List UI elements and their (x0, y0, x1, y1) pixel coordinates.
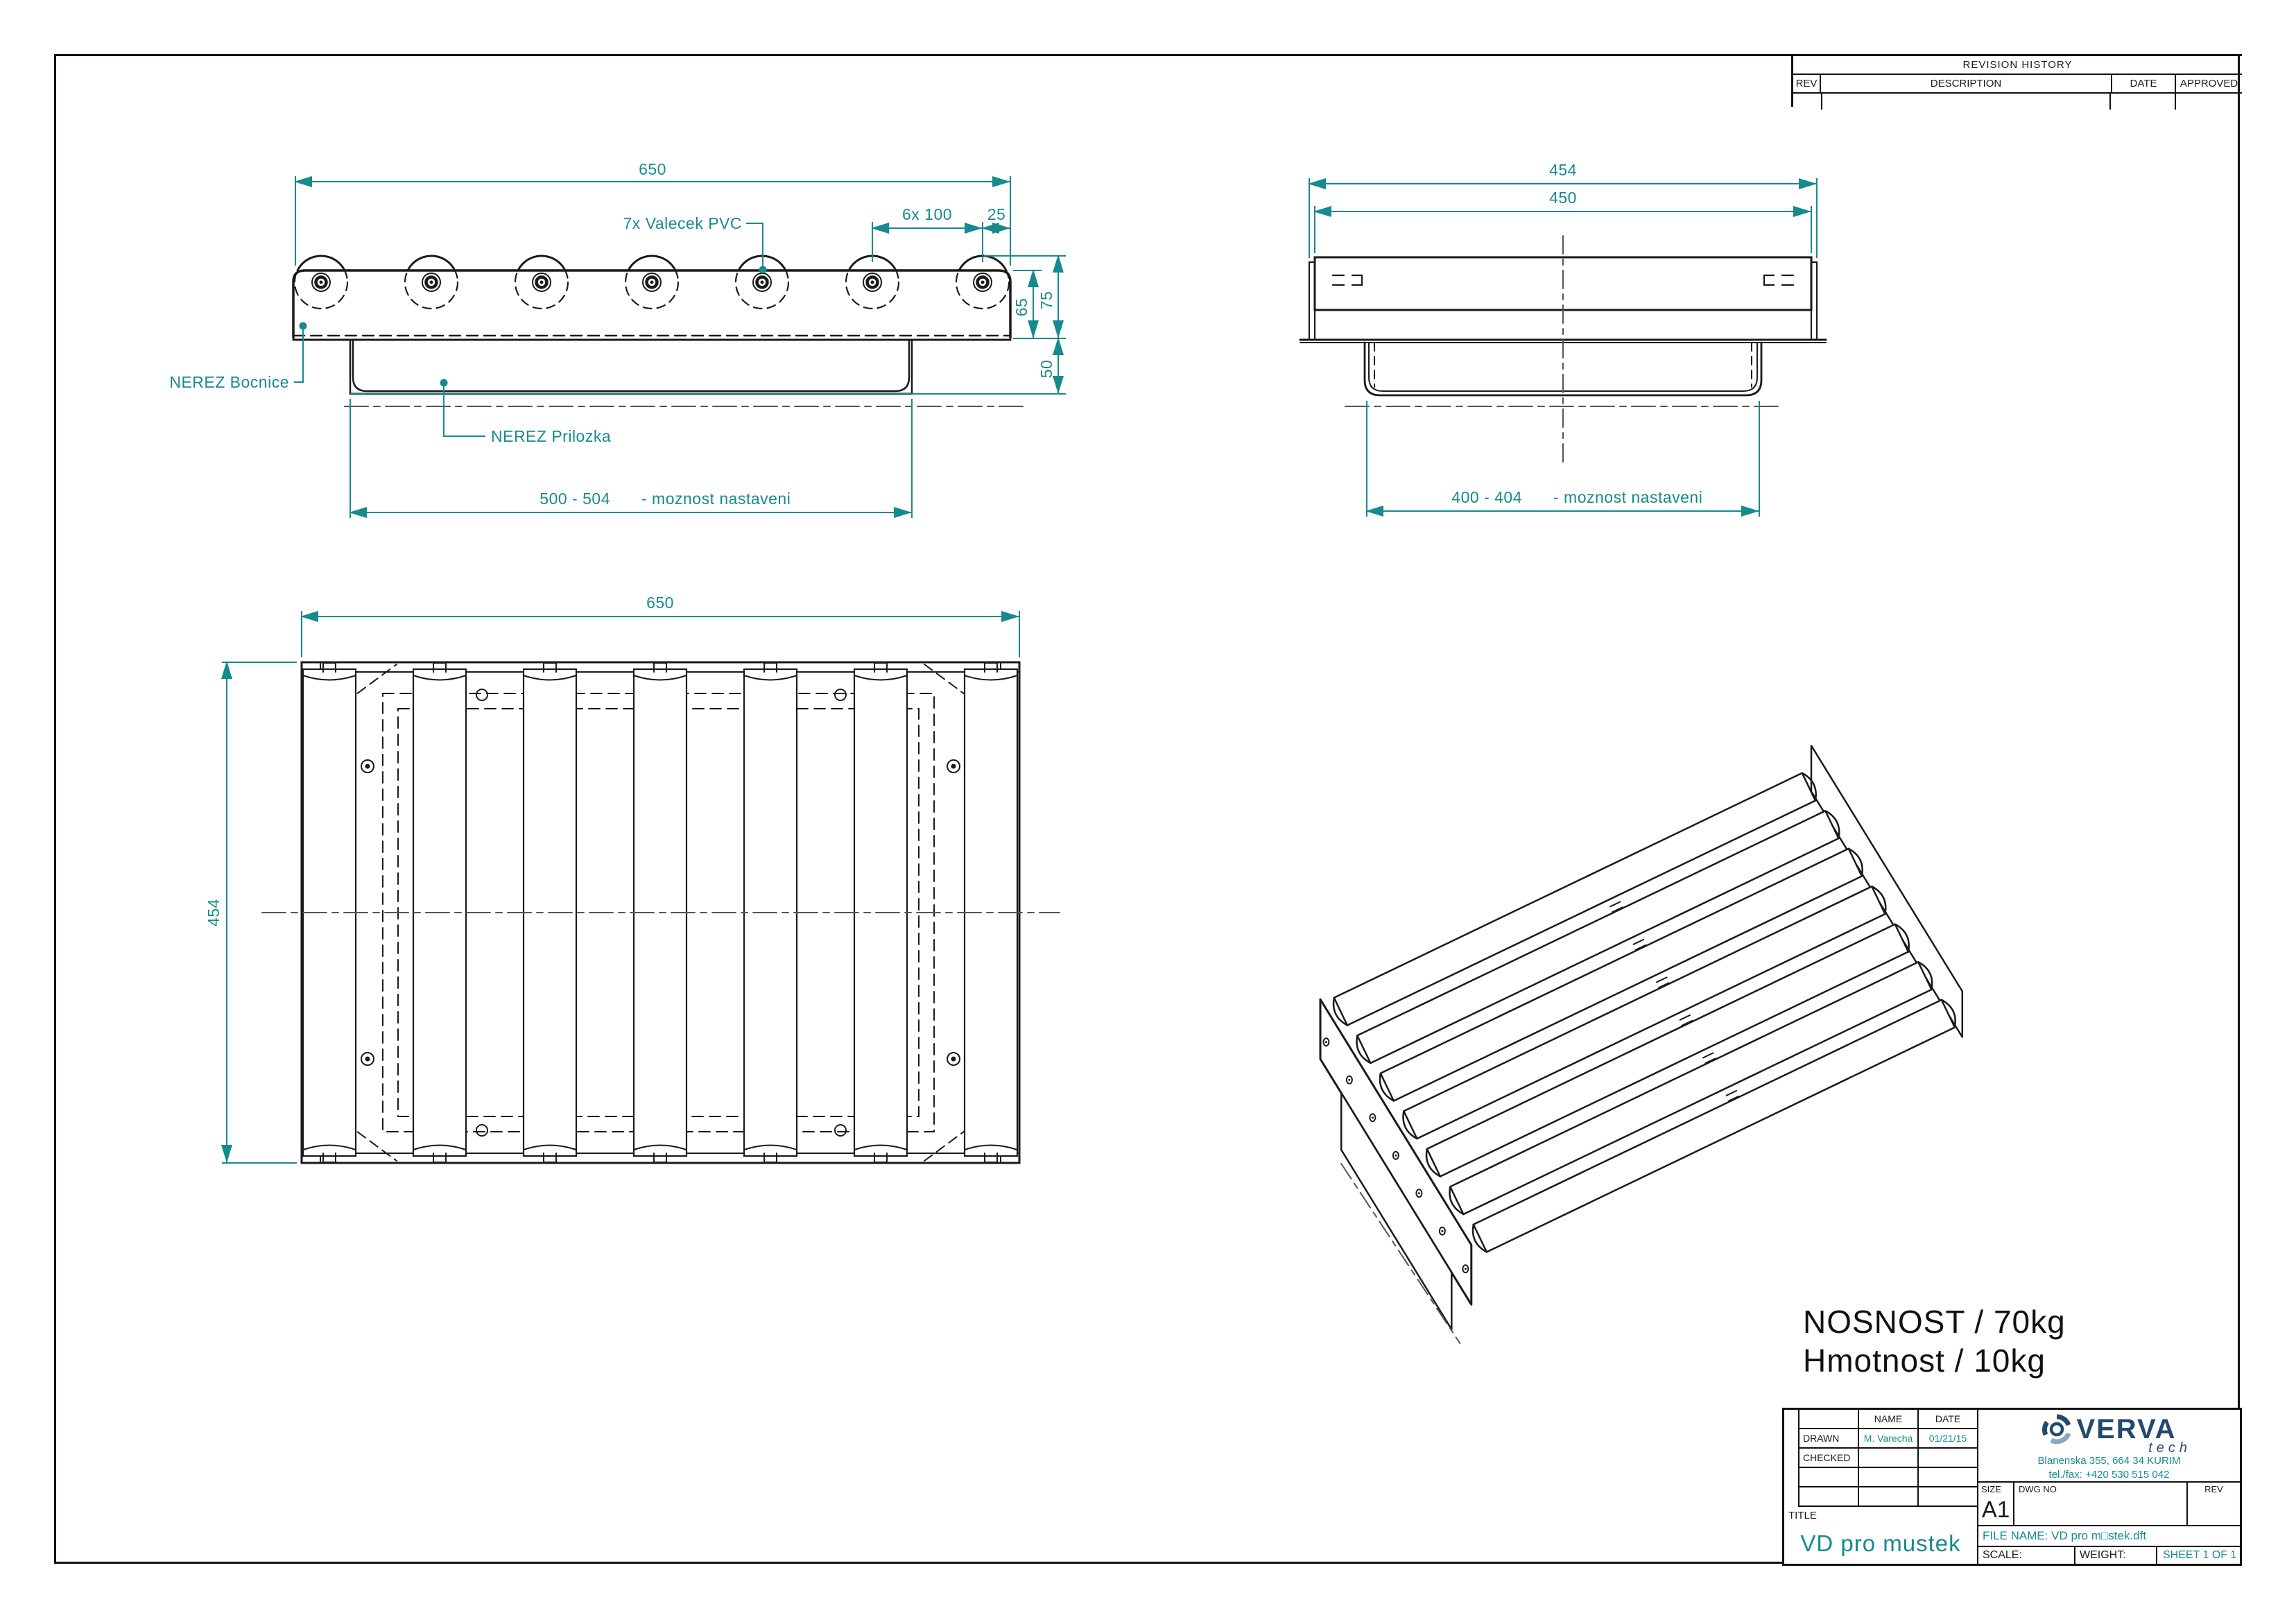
front-rollers (295, 256, 1009, 309)
isometric-view (1320, 745, 1962, 1343)
sheet-size: A1 (1978, 1496, 2013, 1523)
company-logo-cell: VERVA tech Blanenska 355, 664 34 KURIM t… (1978, 1410, 2240, 1483)
verva-logo-icon (2042, 1414, 2072, 1444)
label-insert: NEREZ Prilozka (491, 427, 611, 445)
personnel-header-row: NAME DATE (1798, 1410, 1977, 1429)
revision-col-rev: REV (1793, 75, 1821, 92)
personnel-row-4 (1798, 1487, 1977, 1507)
personnel-row-3 (1798, 1468, 1977, 1487)
personnel-row-drawn: DRAWN M. Varecha 01/21/15 (1798, 1429, 1977, 1449)
dwg-no-cell: DWG NO (2014, 1483, 2188, 1525)
label-roller: 7x Valecek PVC (623, 214, 742, 232)
dim-454-side: 454 (1549, 161, 1577, 179)
title-block: NAME DATE DRAWN M. Varecha 01/21/15 CHEC… (1782, 1408, 2242, 1566)
personnel-header-date: DATE (1917, 1410, 1977, 1428)
scale-weight-sheet-row: SCALE: WEIGHT: SHEET 1 OF 1 (1978, 1547, 2240, 1564)
sheet-cell: SHEET 1 OF 1 (2157, 1547, 2240, 1564)
channel-inner (353, 341, 909, 391)
drawing-title: VD pro mustek (1784, 1530, 1977, 1557)
note-capacity: NOSNOST / 70kg (1803, 1302, 2066, 1341)
dim-adjust-side: 400 - 404 (1451, 488, 1522, 506)
dim-450-side: 450 (1549, 189, 1577, 207)
dim-bracket-height: 50 (1037, 360, 1055, 379)
dim-adjust-front: 500 - 504 (540, 490, 610, 508)
dim-650-front: 650 (639, 160, 666, 178)
dim-454-plan: 454 (205, 899, 223, 926)
personnel-header-name: NAME (1858, 1410, 1917, 1428)
title-block-left: NAME DATE DRAWN M. Varecha 01/21/15 CHEC… (1784, 1410, 1978, 1564)
note-weight: Hmotnost / 10kg (1803, 1341, 2066, 1380)
front-view (293, 256, 1023, 406)
dim-roller-height: 75 (1037, 291, 1055, 310)
weight-cell: WEIGHT: (2075, 1547, 2157, 1564)
revision-history-table: REVISION HISTORY REV DESCRIPTION DATE AP… (1791, 54, 2242, 107)
leader-dot-roller (759, 266, 767, 274)
axle-symbol-right (1764, 275, 1793, 285)
revision-col-approved: APPROVED (2176, 75, 2242, 92)
company-brand: VERVA (2076, 1417, 2176, 1442)
file-name-row: FILE NAME: VD pro m□stek.dft (1978, 1526, 2240, 1547)
personnel-table: NAME DATE DRAWN M. Varecha 01/21/15 CHEC… (1798, 1410, 1977, 1507)
note-adjust-front: - moznost nastaveni (641, 490, 791, 508)
drawn-name: M. Varecha (1858, 1429, 1917, 1447)
scale-cell: SCALE: (1978, 1547, 2075, 1564)
title-block-right: VERVA tech Blanenska 355, 664 34 KURIM t… (1978, 1410, 2240, 1564)
side-view (1300, 236, 1826, 463)
revision-history-title: REVISION HISTORY (1793, 56, 2242, 75)
size-cell: SIZE A1 (1978, 1483, 2014, 1525)
dim-pitch: 6x 100 (902, 205, 952, 223)
dim-rail-height: 65 (1012, 298, 1030, 317)
capacity-notes: NOSNOST / 70kg Hmotnost / 10kg (1803, 1302, 2066, 1380)
note-adjust-side: - moznost nastaveni (1553, 488, 1702, 506)
title-label: TITLE (1788, 1510, 1817, 1521)
company-address: Blanenska 355, 664 34 KURIM tel./fax: +4… (1978, 1454, 2240, 1481)
drawing-sheet: { "sheet": { "bg_color": "#ffffff", "lin… (0, 0, 2296, 1622)
label-side-plate: NEREZ Bocnice (169, 373, 289, 391)
plan-view (262, 662, 1060, 1163)
revision-col-date: DATE (2112, 75, 2176, 92)
title-box: TITLE VD pro mustek (1784, 1507, 1977, 1564)
personnel-row-checked: CHECKED (1798, 1449, 1977, 1468)
revision-history-header: REV DESCRIPTION DATE APPROVED (1793, 75, 2242, 94)
rev-cell: REV (2188, 1483, 2240, 1525)
size-row: SIZE A1 DWG NO REV (1978, 1483, 2240, 1526)
axle-symbol-left (1333, 275, 1362, 285)
drawn-date: 01/21/15 (1917, 1429, 1977, 1447)
dim-end: 25 (987, 205, 1006, 223)
dim-650-plan: 650 (646, 594, 674, 612)
revision-col-desc: DESCRIPTION (1821, 75, 2112, 92)
revision-history-empty-row (1793, 94, 2242, 110)
